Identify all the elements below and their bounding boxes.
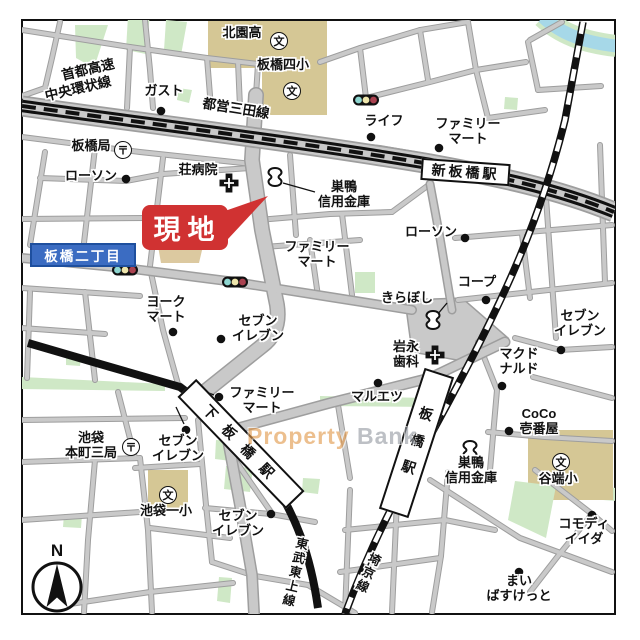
road [238,62,240,107]
poi-dot [267,510,276,519]
map-area [208,21,327,115]
road [22,218,148,219]
map-area [302,478,320,494]
road [150,528,230,538]
school-icon: 文 [283,82,301,100]
poi-dot [182,426,191,435]
poi-dot [461,234,470,243]
site-marker-genchi: 現地 [142,205,228,250]
poi-dot [498,382,507,391]
main-road [430,184,452,310]
bank-icon [269,168,282,186]
road [432,556,441,612]
map-canvas [0,0,640,640]
leader-line [283,183,315,192]
traffic-light-icon [222,277,248,288]
post-office-icon: 〒 [122,438,140,456]
map-area [504,97,518,110]
map-area [75,25,108,68]
traffic-light-icon [353,95,379,106]
poi-dot [367,133,376,142]
road [392,184,430,212]
road [340,558,440,572]
road [528,42,538,90]
poi-dot [169,328,178,337]
road [546,198,556,338]
road [338,405,350,478]
poi-dot [157,107,166,116]
poi-dot [122,175,131,184]
district-badge-itabashi-2chome: 板橋二丁目 [30,243,136,267]
poi-dot [374,379,383,388]
poi-dot [588,511,597,520]
poi-dot [217,335,226,344]
map-area [355,272,375,293]
road [458,283,612,300]
bank-icon [464,441,477,459]
poi-dot [435,144,444,153]
road [445,520,495,530]
poi-dot [557,346,566,355]
map-area [508,481,556,538]
poi-dot [515,568,524,577]
school-icon: 文 [270,32,288,50]
road [198,420,212,562]
poi-dot [482,296,491,305]
school-icon: 文 [552,453,570,471]
road [22,418,185,420]
post-office-icon: 〒 [114,141,132,159]
map-area [177,88,192,103]
road [342,214,352,295]
road [366,70,476,98]
road [533,377,612,398]
road [30,152,45,245]
school-icon: 文 [159,486,177,504]
location-map: 首都高速 中央環状線 都営三田線 東武東上線 埼京線 新板橋駅 下板橋駅 板橋駅… [0,0,640,640]
poi-dot [505,427,514,436]
map-layers [22,14,617,614]
